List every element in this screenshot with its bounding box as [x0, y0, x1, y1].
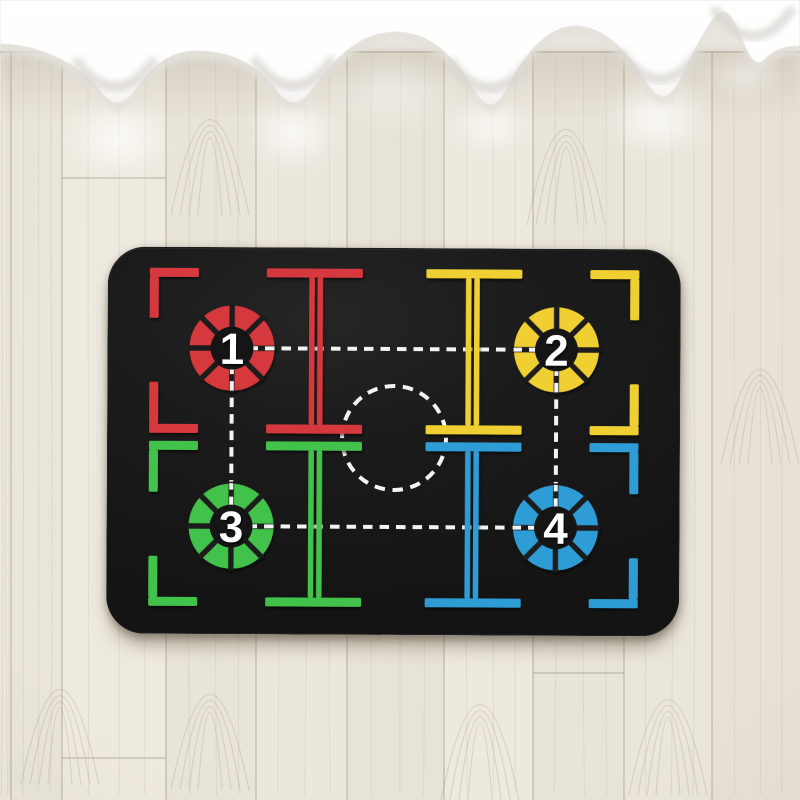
wall-strip — [0, 0, 800, 52]
mat-shape — [630, 279, 639, 320]
mat-shape — [266, 424, 362, 434]
mat-shape — [629, 452, 638, 494]
floor-plank — [11, 0, 62, 800]
mat-shape — [308, 451, 314, 598]
mat-shape — [316, 451, 322, 598]
mat-shape — [630, 384, 639, 426]
floor-plank — [0, 0, 11, 800]
wheel-number: 1 — [220, 325, 245, 374]
mat-shape — [426, 425, 522, 435]
mat-shape — [629, 558, 638, 599]
mat-shape — [464, 451, 470, 598]
mat-art-svg: 11223344 — [107, 248, 680, 636]
mat-shape — [473, 451, 479, 598]
mat-shape — [267, 268, 363, 278]
curtain-light-glow — [320, 52, 470, 132]
mat-shape — [150, 268, 199, 277]
mat-shape — [590, 270, 639, 279]
mat-shape — [309, 278, 315, 425]
mat-shape — [425, 598, 521, 608]
mat-shape — [148, 597, 197, 606]
mat-shape — [426, 269, 522, 279]
dashed-guide-line — [231, 526, 555, 528]
dashed-guide-line — [232, 348, 556, 350]
wheel-number: 2 — [544, 327, 569, 376]
curtain-light-glow — [606, 76, 710, 160]
mat-shape — [317, 278, 323, 425]
mat-shape — [150, 277, 159, 318]
mat-shape — [589, 443, 638, 452]
mat-shape — [465, 278, 471, 425]
dashed-guides-over — [231, 348, 556, 528]
play-mat: 11223344 — [106, 247, 681, 637]
dashed-guide-line — [232, 348, 556, 350]
mat-shape — [149, 424, 198, 433]
center-dashed-circle — [342, 386, 447, 491]
curtain-light-glow — [68, 98, 168, 178]
curtain-light-glow — [707, 51, 783, 99]
mat-shape — [589, 599, 638, 608]
mat-shape — [590, 426, 639, 435]
mat-shape — [149, 382, 158, 424]
mat-shape — [425, 442, 521, 452]
mat-shape — [266, 441, 362, 451]
mat-shape — [148, 556, 157, 597]
floor-plank — [712, 0, 800, 800]
dashed-guide-line — [231, 526, 555, 528]
dashed-guides-under — [231, 348, 556, 528]
room-scene: 11223344 — [0, 0, 800, 800]
wheel-number: 3 — [219, 503, 244, 552]
mat-shape — [149, 441, 198, 450]
mat-shape — [265, 597, 361, 607]
mat-shape — [149, 450, 158, 492]
wheel-number: 4 — [543, 505, 568, 554]
mat-shape — [474, 278, 480, 425]
